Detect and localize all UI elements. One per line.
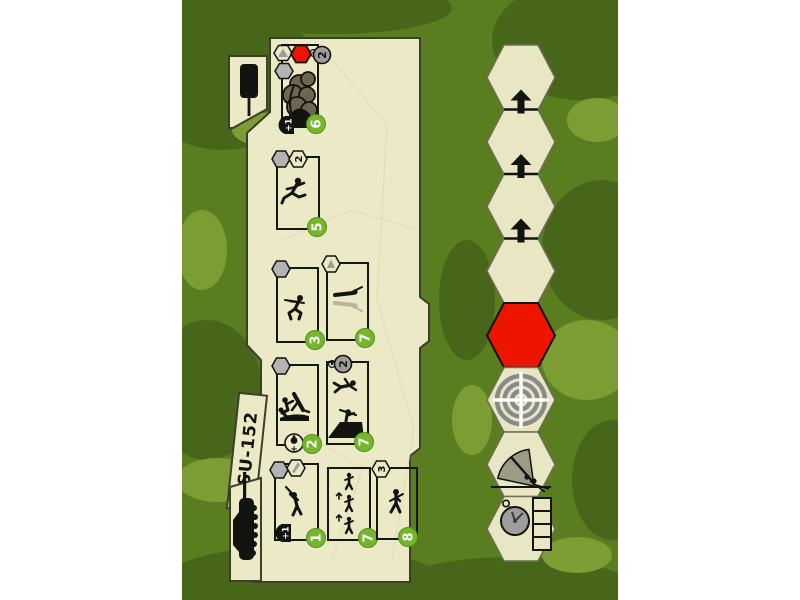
- svg-text:+1: +1: [282, 526, 292, 539]
- move-cost-hex-icon: 2: [289, 151, 307, 167]
- svg-text:1: 1: [310, 533, 325, 542]
- range-badge: 2: [314, 47, 331, 64]
- svg-text:3: 3: [377, 465, 388, 472]
- gray-terrain-hex-icon: [272, 261, 290, 277]
- game-board: ISU-152: [182, 0, 618, 600]
- action-value-badge: 6: [307, 115, 326, 134]
- hill-hex-icon: [274, 46, 292, 61]
- svg-text:8: 8: [402, 532, 417, 541]
- gray-terrain-hex-icon: [275, 64, 293, 79]
- action-value-badge: 8: [399, 528, 418, 547]
- svg-text:2: 2: [306, 439, 321, 448]
- svg-text:7: 7: [358, 437, 373, 446]
- gray-terrain-hex-icon: [272, 358, 290, 374]
- svg-text:5: 5: [311, 222, 326, 231]
- ap-shell-icon: +1: [279, 116, 295, 134]
- action-value-badge: 3: [306, 331, 325, 350]
- svg-text:6: 6: [310, 119, 325, 128]
- ap-shell-icon: +1: [276, 524, 292, 542]
- gray-terrain-hex-icon: [272, 151, 290, 167]
- svg-text:+1: +1: [285, 118, 295, 131]
- unit-tab-bottom: [230, 472, 261, 581]
- gray-terrain-hex-icon: [270, 462, 288, 478]
- action-value-badge: 1: [307, 529, 326, 548]
- action-value-badge: 7: [355, 433, 374, 452]
- action-value-badge: 7: [359, 529, 378, 548]
- svg-text:7: 7: [359, 333, 374, 342]
- move-cost-hex-icon: 3: [372, 461, 390, 477]
- bolt-hex-icon: [287, 460, 305, 476]
- svg-text:2: 2: [294, 155, 305, 162]
- svg-text:3: 3: [309, 335, 324, 344]
- svg-text:2: 2: [337, 360, 350, 368]
- page: ISU-152: [0, 0, 800, 600]
- range-badge: 2: [335, 356, 352, 373]
- action-value-badge: 2: [303, 435, 322, 454]
- red-hex-icon: [291, 46, 311, 63]
- action-value-badge: 7: [356, 329, 375, 348]
- svg-text:7: 7: [362, 533, 377, 542]
- turn-track: [533, 498, 551, 550]
- svg-text:2: 2: [316, 51, 329, 59]
- action-value-badge: 5: [308, 218, 327, 237]
- wedge-hex-icon: [322, 256, 340, 272]
- grenade-plus-label: +: [290, 445, 298, 455]
